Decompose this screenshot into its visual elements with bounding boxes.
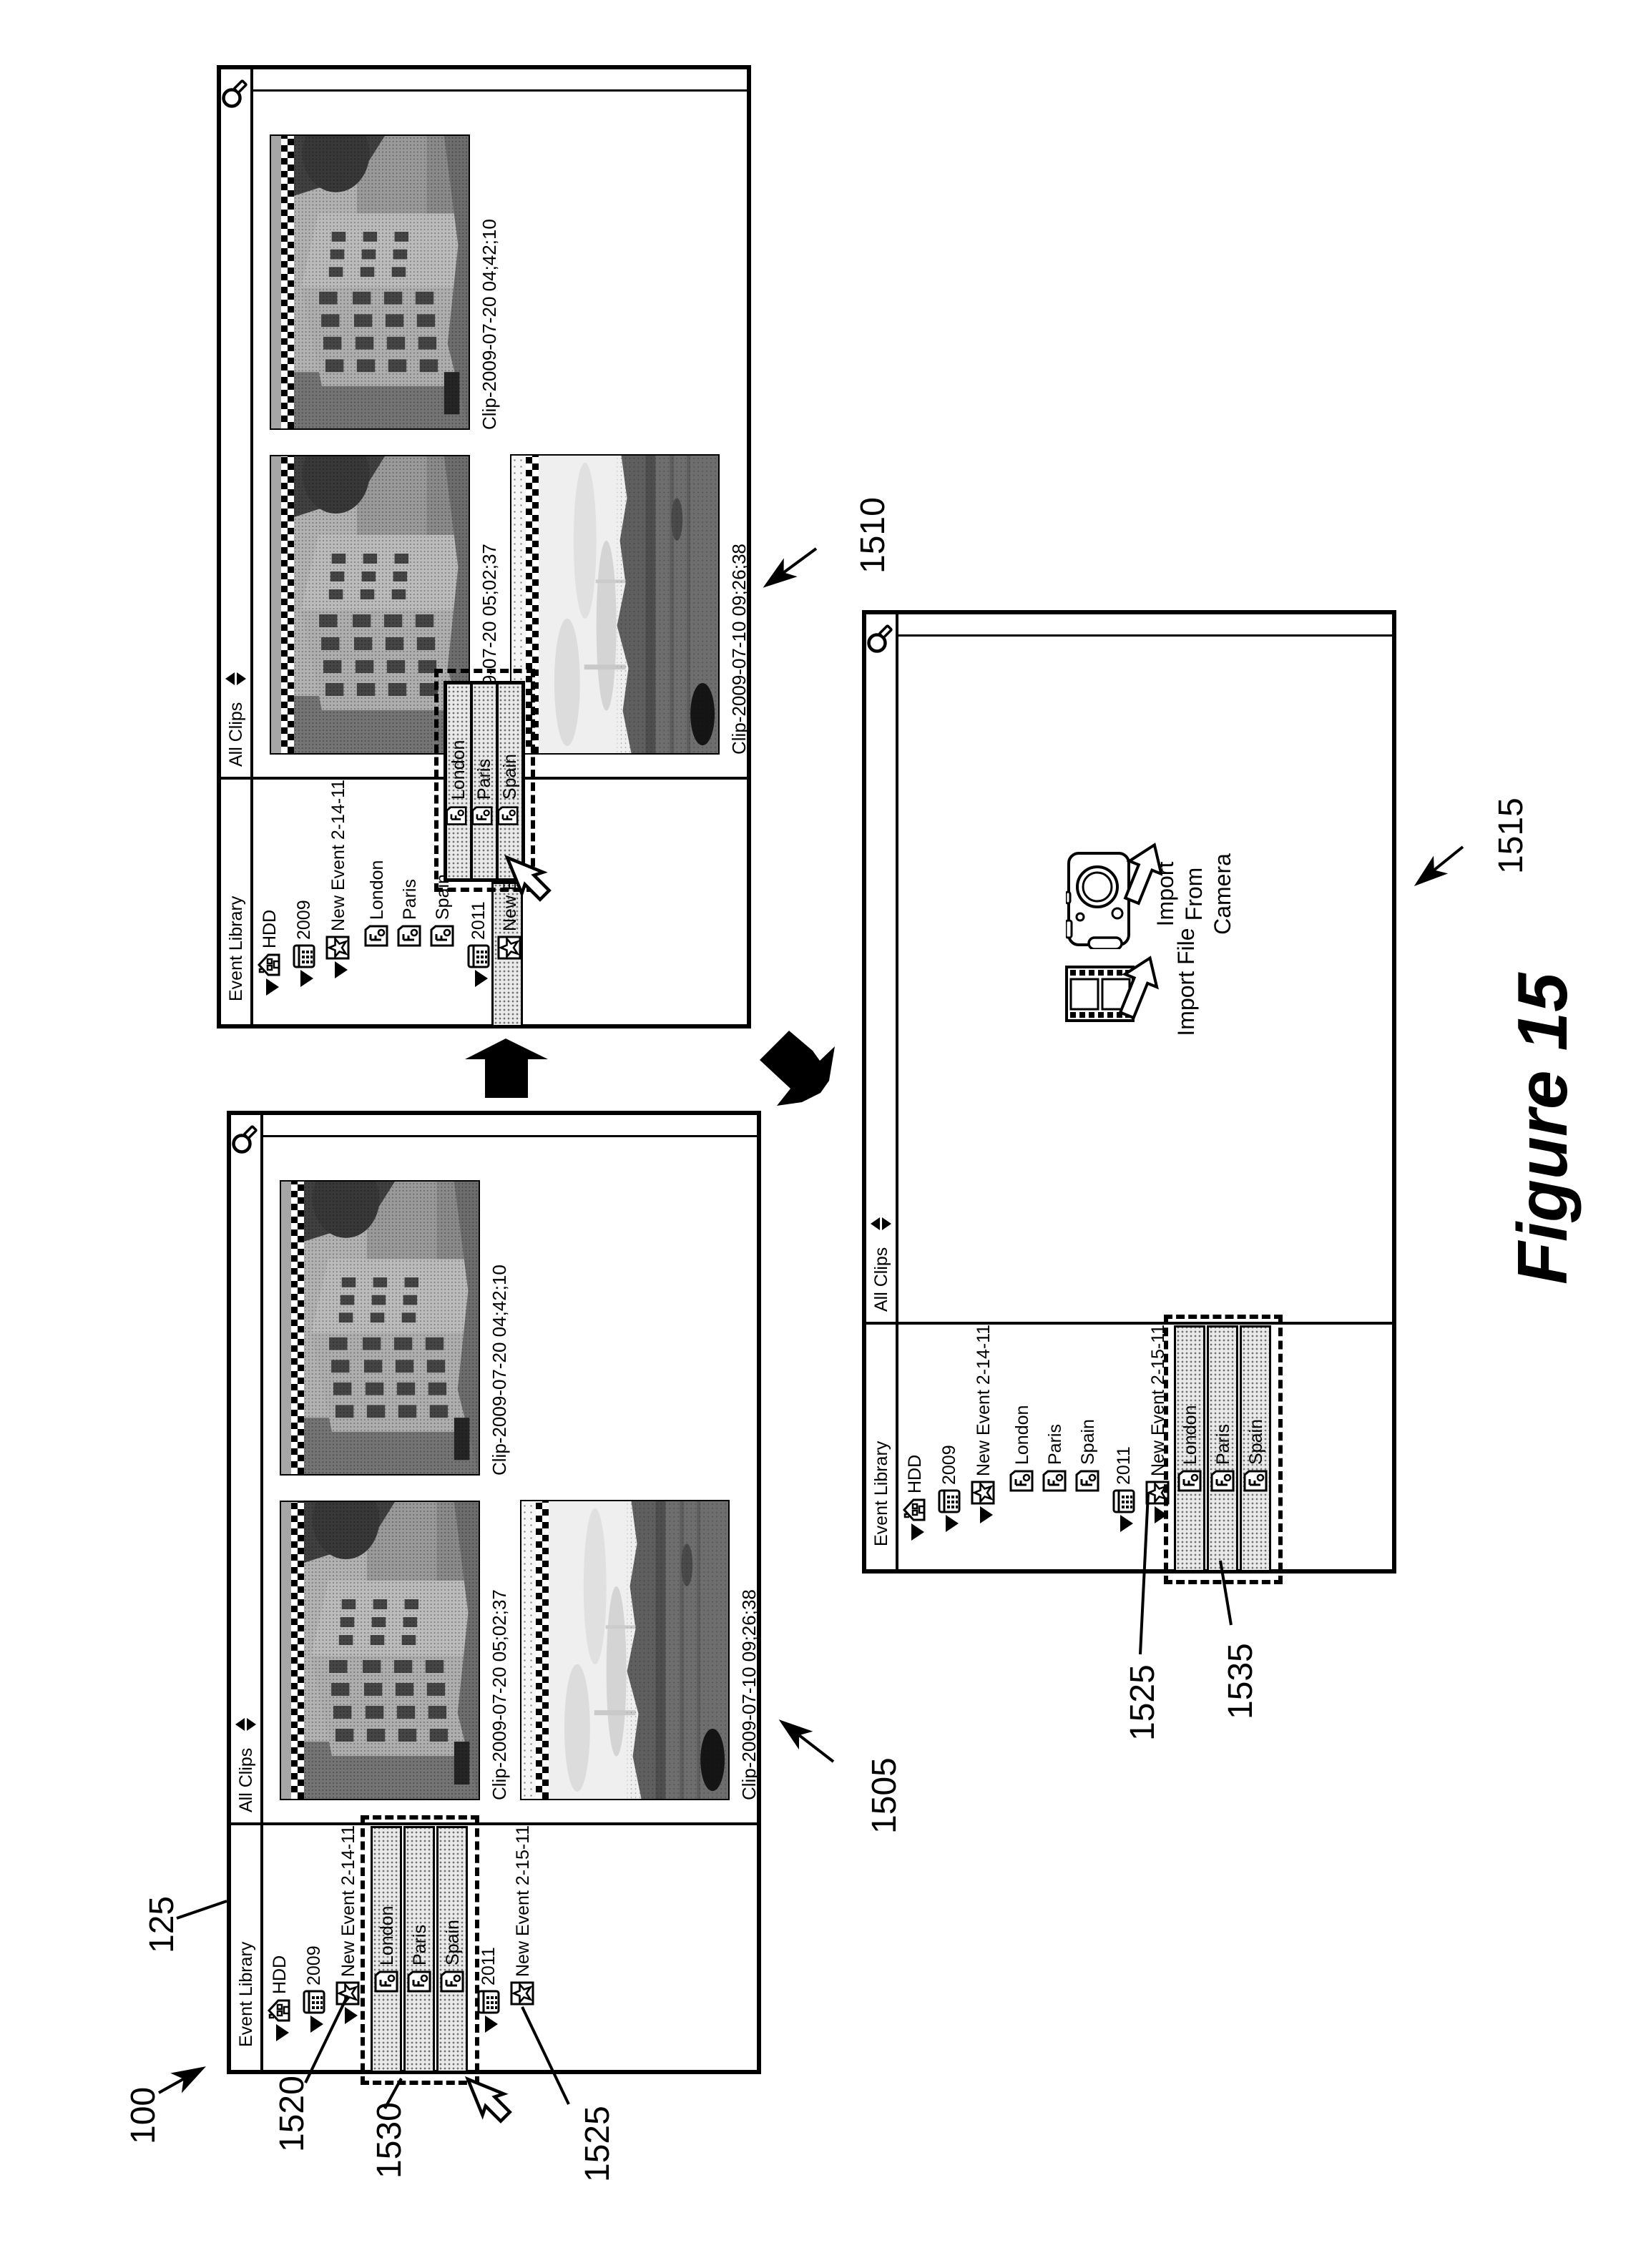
svg-text:Figure 15: Figure 15 bbox=[1503, 972, 1582, 1285]
svg-text:1520: 1520 bbox=[273, 2076, 311, 2152]
svg-text:1515: 1515 bbox=[1492, 797, 1530, 874]
svg-text:1525: 1525 bbox=[1124, 1664, 1162, 1741]
svg-text:1525: 1525 bbox=[579, 2106, 617, 2182]
svg-text:1510: 1510 bbox=[854, 497, 892, 574]
svg-text:1530: 1530 bbox=[371, 2102, 408, 2179]
svg-text:100: 100 bbox=[124, 2087, 162, 2144]
svg-text:1535: 1535 bbox=[1222, 1643, 1260, 1719]
svg-text:1505: 1505 bbox=[866, 1757, 903, 1834]
svg-text:125: 125 bbox=[143, 1896, 181, 1953]
